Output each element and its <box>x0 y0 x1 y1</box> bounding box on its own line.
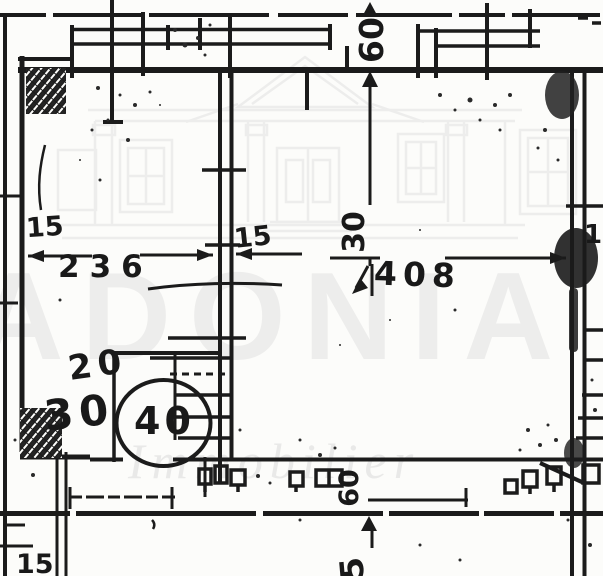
left-wall <box>0 13 72 576</box>
right-wall <box>545 70 603 576</box>
dim-top-band-60: 60 <box>355 17 407 63</box>
dimension-lines-bottom <box>70 487 468 529</box>
dim-stair-20: 20 <box>66 344 129 386</box>
top-facade <box>0 0 603 122</box>
floor-plan-scan: ADONIA Immobilier <box>0 0 603 576</box>
dim-middle-vertical-30: 30 <box>340 206 392 258</box>
dim-right-room-408: 408 <box>373 256 461 292</box>
dim-left-room-236: 236 <box>58 252 153 283</box>
dim-middle-wall-15: 15 <box>233 222 273 253</box>
dim-stair-30: 30 <box>42 388 116 437</box>
dim-stair-circled-40: 40 <box>134 402 195 440</box>
plan-ink-drawing <box>0 0 603 576</box>
dim-bottom-band-60: 60 <box>336 466 380 510</box>
dim-right-wall-15: 15 <box>584 222 603 248</box>
dim-left-wall-15: 15 <box>25 213 64 243</box>
dimension-line-vertical-bottom <box>361 516 377 548</box>
dim-bottom-vertical-5: 5 <box>334 546 377 576</box>
dim-bottom-left-15: 15 <box>16 551 54 576</box>
balcony-posts <box>199 465 599 494</box>
